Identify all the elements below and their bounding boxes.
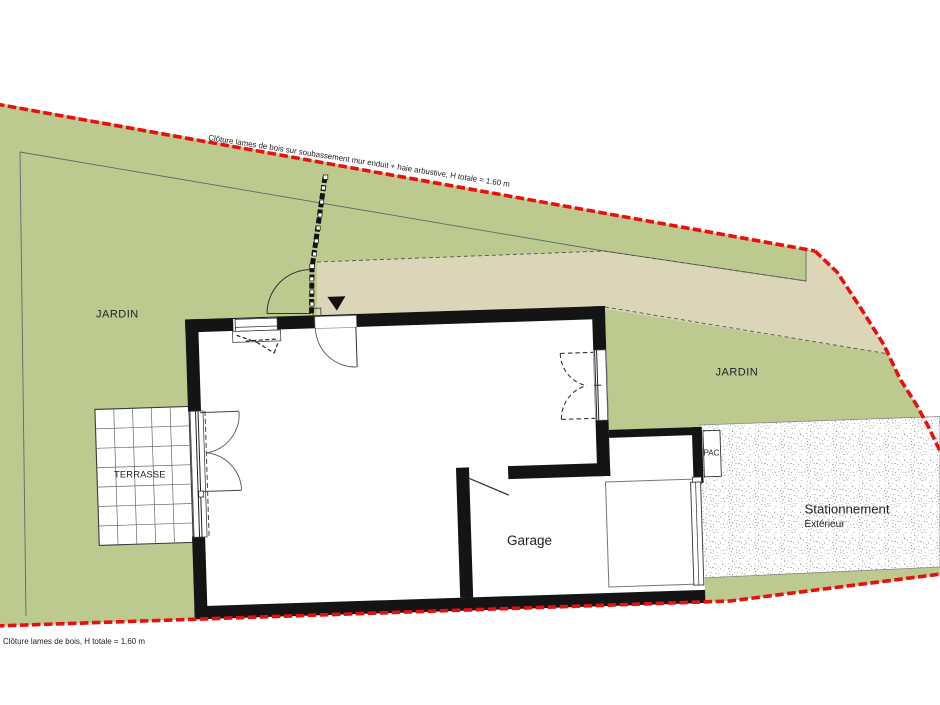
svg-text:TERRASSE: TERRASSE	[114, 470, 166, 480]
svg-text:Garage: Garage	[507, 533, 552, 548]
svg-text:Extérieur: Extérieur	[805, 519, 846, 530]
svg-text:JARDIN: JARDIN	[96, 309, 139, 321]
svg-text:JARDIN: JARDIN	[716, 367, 759, 379]
svg-text:Clôture lames de bois, H total: Clôture lames de bois, H totale = 1.60 m	[3, 637, 145, 646]
svg-text:Stationnement: Stationnement	[805, 502, 890, 517]
svg-text:PAC: PAC	[704, 449, 720, 458]
